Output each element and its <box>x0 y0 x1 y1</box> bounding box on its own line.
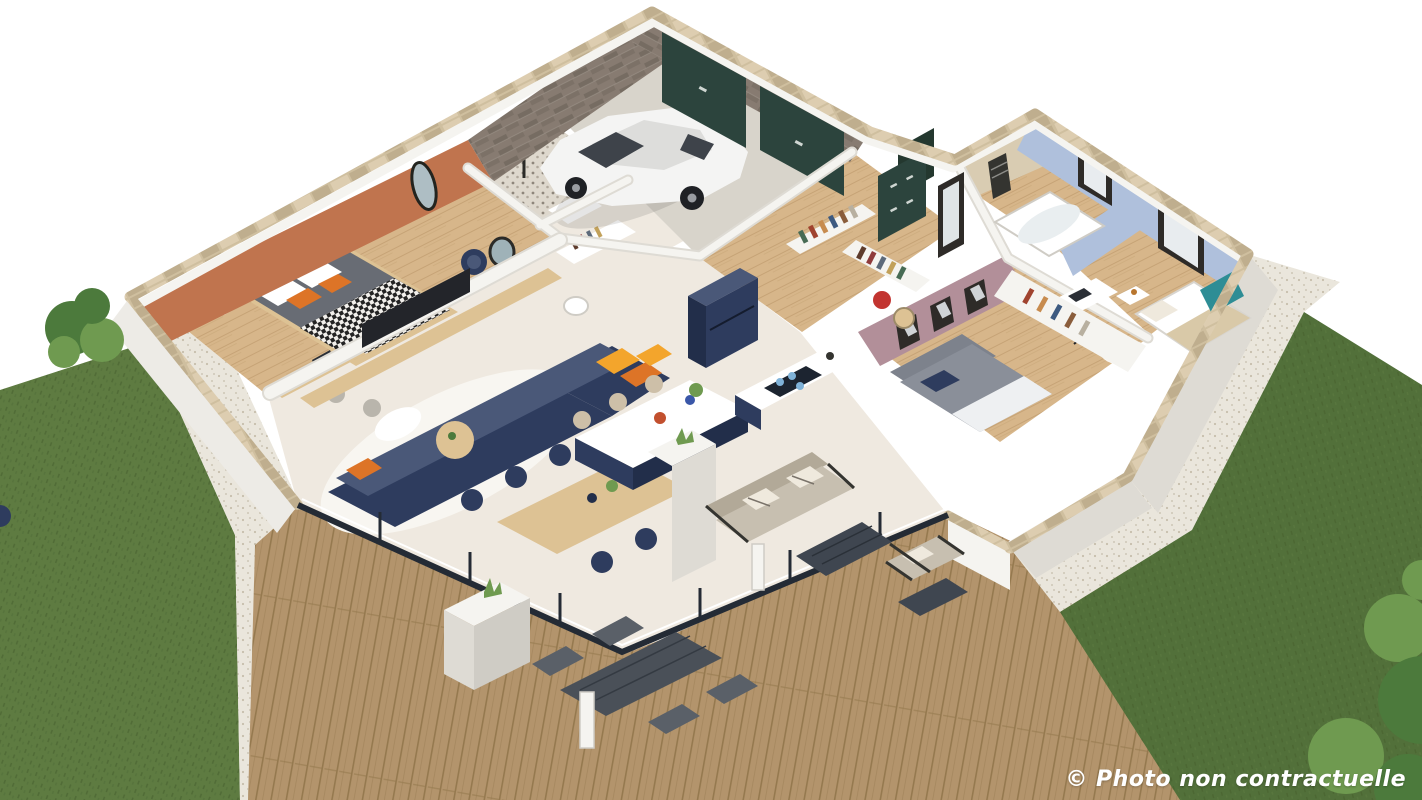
table-plant <box>606 480 618 492</box>
fruit-plate <box>654 412 666 424</box>
watermark: © Photo non contractuelle <box>1065 767 1406 792</box>
bar-stool <box>645 375 663 393</box>
red-chair <box>873 291 891 309</box>
faucet <box>826 352 834 360</box>
planter-box2-front <box>672 444 716 582</box>
bar-stool <box>573 411 591 429</box>
burner <box>796 382 804 390</box>
bar-stool <box>609 393 627 411</box>
dining-chair <box>461 489 483 511</box>
bottle-decor <box>1131 289 1137 295</box>
burner <box>788 372 796 380</box>
dining-chair <box>549 444 571 466</box>
toilet-icon <box>564 297 588 315</box>
dining-chair <box>635 528 657 550</box>
coffee-table-decor <box>448 432 456 440</box>
kitchen-tall-cabinet <box>688 296 706 368</box>
burner <box>776 378 784 386</box>
armchair-blue-seat <box>467 255 481 269</box>
car-wheel-hub <box>572 184 580 192</box>
stool-grey <box>363 399 381 417</box>
table-vase <box>587 493 597 503</box>
floorplan-svg <box>0 0 1422 800</box>
side-table-round <box>894 308 914 328</box>
floorplan-render: © Photo non contractuelle <box>0 0 1422 800</box>
light-bollard <box>580 692 594 748</box>
coffee-table <box>436 421 474 459</box>
car-wheel-hub <box>688 194 697 203</box>
dining-chair <box>505 466 527 488</box>
island-plant <box>689 383 703 397</box>
light-bollard <box>752 544 764 590</box>
dining-chair <box>591 551 613 573</box>
entry-mirror-glass <box>943 181 959 247</box>
shrub-top-left <box>45 288 124 368</box>
